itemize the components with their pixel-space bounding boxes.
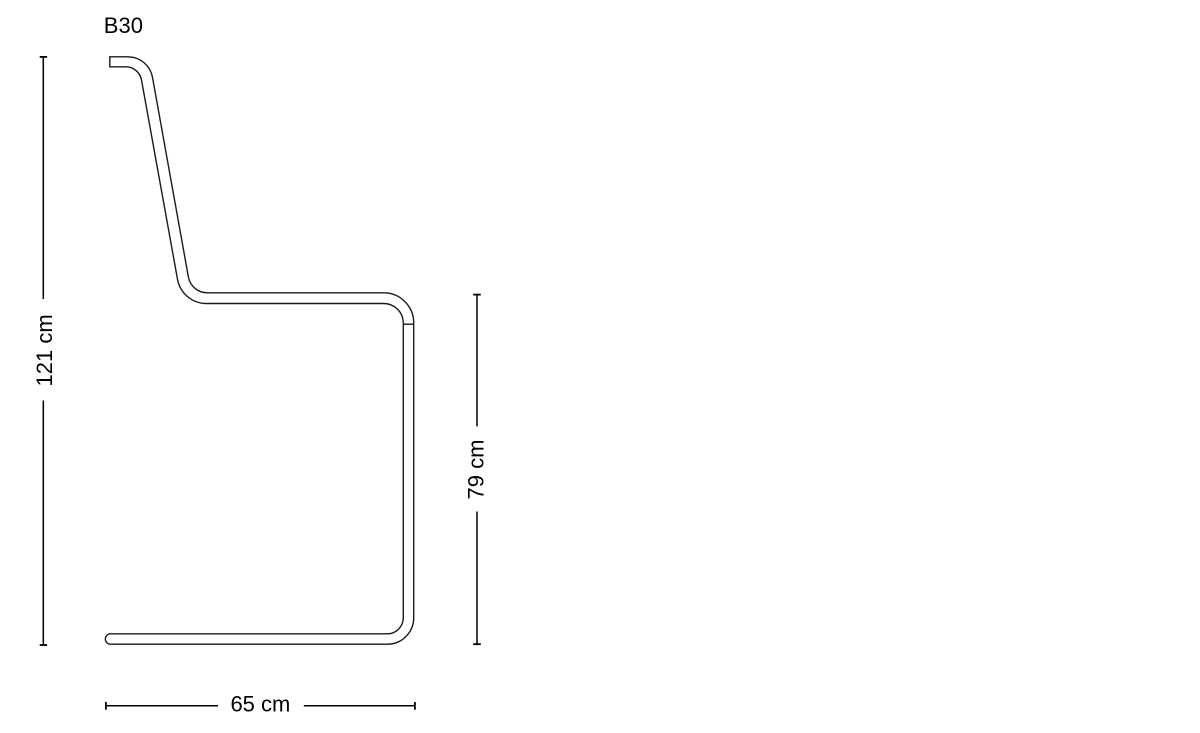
svg-text:79 cm: 79 cm — [464, 440, 489, 500]
svg-text:B30: B30 — [104, 13, 143, 38]
svg-text:65 cm: 65 cm — [230, 691, 290, 716]
svg-text:121 cm: 121 cm — [32, 314, 57, 386]
